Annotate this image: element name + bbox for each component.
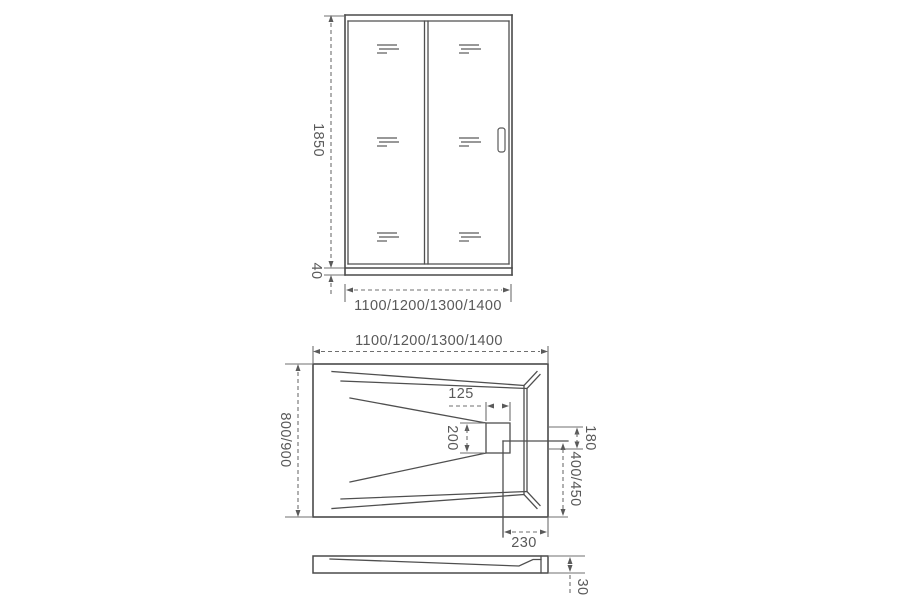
shine-mark [459,233,481,241]
shine-mark [377,233,399,241]
dim-door-base-height: 40 [308,263,344,297]
dim-tray-thickness-label: 30 [574,579,590,596]
front-view-door: 1850 40 1100/1200/1300/1400 [308,15,512,314]
shine-mark [377,138,399,146]
rim-contour-top-inner [341,375,540,389]
dim-tray-depth: 800/900 [277,364,300,517]
dim-door-height-label: 1850 [310,123,326,157]
drain-outline [486,423,510,453]
dim-tray-width-label: 1100/1200/1300/1400 [355,333,503,349]
funnel-bottom-slope [350,453,486,482]
dim-drain-center-label: 400/450 [567,451,583,506]
dim-drain-side-label: 180 [582,425,598,450]
dim-drain-width: 125 [448,386,510,421]
shine-mark [459,138,481,146]
technical-drawing: 1850 40 1100/1200/1300/1400 1100/1200/13… [0,0,900,600]
dim-door-width: 1100/1200/1300/1400 [345,284,511,314]
dim-drain-to-right-edge: 230 [504,518,548,551]
dim-door-width-label: 1100/1200/1300/1400 [354,298,502,314]
door-handle [498,128,505,152]
dim-door-base-label: 40 [308,263,324,280]
top-view-tray: 1100/1200/1300/1400 800/900 [277,333,598,551]
dim-tray-width: 1100/1200/1300/1400 [313,333,548,363]
shine-mark [459,45,481,53]
glass-shine-marks [377,45,481,241]
tray-profile-floor-slope [330,559,541,566]
shine-mark [377,45,399,53]
rim-contour-bottom-outer [332,495,537,509]
dim-drain-side-height: 180 [549,425,598,450]
dim-drain-width-label: 125 [448,386,473,402]
dim-door-height: 1850 [310,15,344,268]
dim-tray-depth-label: 800/900 [277,412,293,467]
dim-drain-offset-label: 230 [511,535,536,551]
rim-contour-top-outer [332,372,537,386]
drawing-canvas: 1850 40 1100/1200/1300/1400 1100/1200/13… [0,0,900,600]
dim-drain-mouth-height: 200 [444,423,484,453]
dim-tray-thickness: 30 [549,556,590,596]
side-view-tray: 30 [313,556,590,596]
rim-contour-bottom-inner [341,492,540,506]
dim-drain-center-to-edge: 400/450 [549,443,583,517]
tray-profile-outline [313,556,548,573]
dim-drain-mouth-label: 200 [444,425,460,450]
